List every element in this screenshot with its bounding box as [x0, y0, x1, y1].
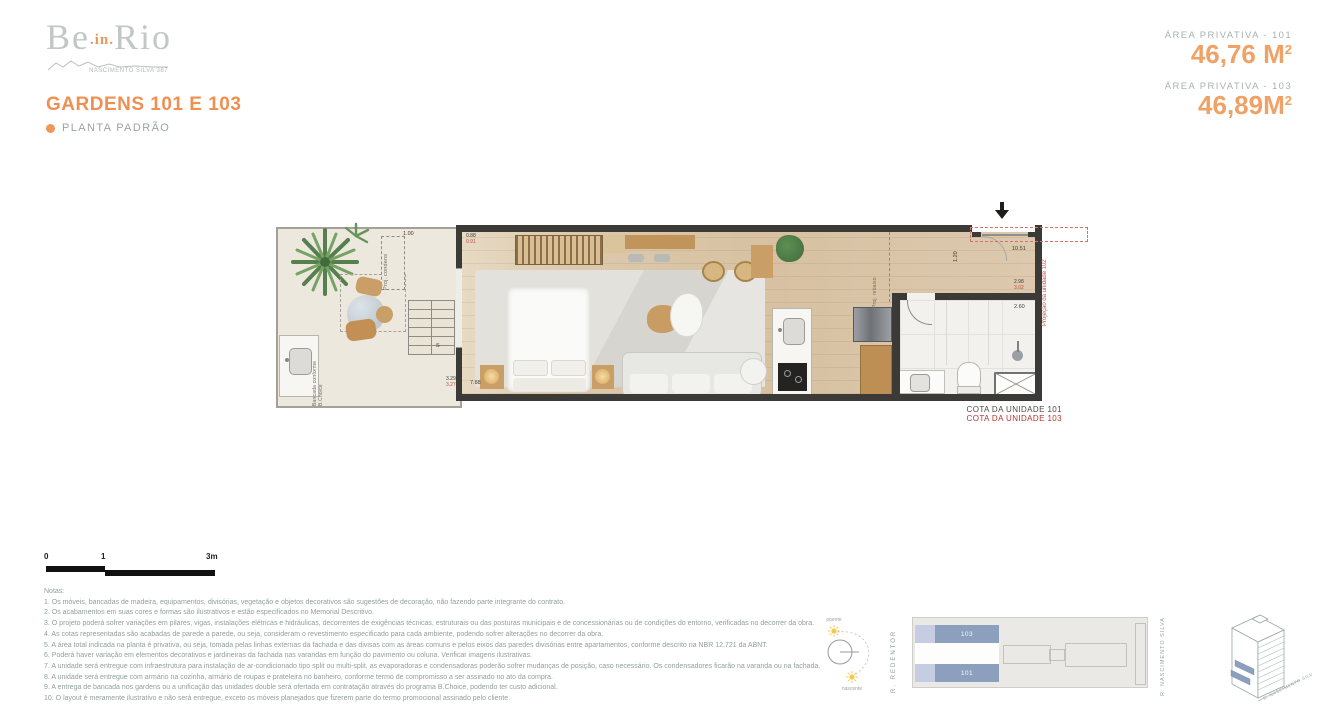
wood-desk	[625, 235, 695, 249]
dim-bath-counter: 1.62	[895, 385, 901, 396]
keyplan-unit-101: 101	[935, 664, 999, 682]
bed	[507, 287, 590, 392]
garden-pouf	[376, 306, 393, 323]
notes-title: Notas:	[44, 587, 820, 597]
keyplan-garden-top	[915, 625, 935, 643]
pillow-row	[513, 378, 586, 390]
keyplan-garden-bottom	[915, 664, 935, 682]
area-value-101: 46,76 M2	[1165, 41, 1292, 68]
bullet-icon	[46, 124, 55, 133]
floor-plan: Proj. condens Bancada conforme B.Choice …	[270, 208, 1045, 408]
logo-rio: Rio	[114, 17, 172, 57]
pillow	[513, 360, 548, 376]
street-right-label: R. NASCIMENTO SILVA	[1160, 617, 1166, 696]
sofa-cushion	[672, 374, 710, 393]
slatted-panel	[515, 235, 603, 265]
keyplan-outline	[1135, 623, 1146, 685]
proj-condens-label: Proj. condens	[383, 254, 389, 290]
burner-icon	[784, 370, 791, 377]
bath-partition	[988, 301, 989, 365]
dim-pair-bed: 0.88 0.91	[466, 234, 476, 245]
keyplan-corridor	[915, 643, 999, 664]
dim-living-length: 7.88	[470, 380, 481, 386]
scale-0: 0	[44, 552, 48, 561]
bathroom-basin	[910, 374, 930, 392]
unit-102-projection-box	[970, 227, 1088, 242]
shelf	[603, 235, 625, 253]
garden-sink	[289, 348, 312, 375]
scale-1: 1	[101, 552, 105, 561]
toilet-tank	[957, 386, 981, 394]
sliding-glass-door	[456, 268, 462, 348]
bancada-label: Bancada conforme B.Choice	[312, 361, 324, 406]
rebaixo-dash-line	[889, 232, 890, 302]
note-line: 5. A área total indicada na planta é pri…	[44, 641, 820, 651]
cota-103: COTA DA UNIDADE 103	[940, 414, 1062, 423]
brand-logo: Be.in.Rio NASCIMENTO SILVA 387	[46, 16, 172, 74]
keyplan-outline	[1049, 649, 1065, 661]
sun-icon	[828, 625, 840, 637]
bath-partition	[946, 301, 947, 365]
logo-subtitle: NASCIMENTO SILVA 387	[46, 68, 168, 74]
dim-pair-bath: 2.98 3.02	[1014, 280, 1024, 291]
scale-3m: 3m	[206, 552, 218, 561]
keyplan-outline	[1065, 643, 1127, 667]
page-title: GARDENS 101 E 103	[46, 94, 241, 116]
building-locator: R. NASCIMENTO SILVA	[1202, 604, 1312, 704]
rattan-chair	[702, 261, 725, 282]
dim-entry-width: 1.20	[953, 251, 959, 262]
kitchen-sink	[783, 318, 805, 345]
stairs-letter: S	[436, 343, 440, 349]
keyplan-unit-103: 103	[935, 625, 999, 643]
sup-103: 2	[1285, 93, 1292, 108]
cooktop	[778, 363, 807, 391]
note-line: 7. A unidade será entregue com infraestr…	[44, 662, 820, 672]
page-subtitle: PLANTA PADRÃO	[62, 122, 170, 134]
sun-icon	[846, 671, 858, 683]
note-line: 10. O layout é meramente ilustrativo e n…	[44, 694, 820, 704]
proj-rebaixo-label: Proj. rebaixo	[872, 277, 878, 308]
stool	[654, 254, 670, 262]
scale-segment-2	[105, 570, 215, 576]
note-line: 9. A entrega de bancada nos gardens ou a…	[44, 683, 820, 693]
street-left-label: R. REDENTOR	[891, 630, 897, 693]
burner-icon	[795, 376, 802, 383]
logo-be: Be	[46, 17, 90, 57]
sup-101: 2	[1285, 42, 1292, 57]
sun-path-diagram: poente nascente	[806, 606, 898, 702]
plant-icon	[776, 235, 804, 262]
keyplan-outline	[1003, 645, 1051, 664]
logo-in: .in.	[90, 32, 114, 48]
wall-top	[456, 225, 972, 232]
cota-101: COTA DA UNIDADE 101	[940, 405, 1062, 414]
marble-side-table	[740, 358, 767, 385]
note-line: 1. Os móveis, bancadas de madeira, equip…	[44, 598, 820, 608]
poente-label: poente	[826, 617, 842, 623]
scale-segment-1	[46, 566, 105, 572]
shower-arm	[1017, 341, 1019, 352]
lamp-icon	[595, 369, 610, 384]
note-line: 8. A unidade será entregue com armário n…	[44, 673, 820, 683]
nascente-label: nascente	[842, 686, 863, 692]
page-subtitle-row: PLANTA PADRÃO	[46, 122, 170, 134]
proj-unidade-label: Projeção da unidade 102	[1042, 259, 1048, 326]
stairs-rail	[431, 300, 432, 355]
brochure-page: Be.in.Rio NASCIMENTO SILVA 387 GARDENS 1…	[0, 0, 1328, 705]
logo-wordmark: Be.in.Rio	[46, 16, 172, 58]
sofa-cushion	[630, 374, 668, 393]
kitchen-island	[860, 345, 892, 395]
dim-unit-length: 10.51	[1012, 246, 1026, 252]
sun-arc-dashes	[837, 632, 869, 676]
coffee-table-white	[670, 293, 703, 337]
stool	[628, 254, 644, 262]
wall-right	[1035, 225, 1042, 401]
note-line: 4. As cotas representadas são acabadas d…	[44, 630, 820, 640]
note-line: 6. Poderá haver variação em elementos de…	[44, 651, 820, 661]
bathroom-door-gap	[907, 293, 935, 300]
entry-arrow-stem	[1000, 202, 1004, 210]
dim-bath-width: 2.60	[1014, 304, 1025, 310]
refrigerator	[853, 307, 892, 342]
note-line: 3. O projeto poderá sofrer variações em …	[44, 619, 820, 629]
notes-block: Notas: 1. Os móveis, bancadas de madeira…	[44, 587, 820, 705]
kitchen-faucet-icon	[778, 328, 782, 332]
wood-console	[751, 245, 773, 278]
shaft-x-box	[994, 372, 1038, 396]
cota-legend: COTA DA UNIDADE 101 COTA DA UNIDADE 103	[940, 405, 1062, 423]
wall-bottom	[456, 394, 1042, 401]
dim-garden-top: 1.00	[403, 231, 414, 237]
entry-arrow-icon	[995, 210, 1009, 219]
note-line: 2. Os acabamentos em suas cores e formas…	[44, 608, 820, 618]
area-value-103: 46,89M2	[1165, 92, 1292, 119]
lamp-icon	[484, 369, 499, 384]
private-areas: ÁREA PRIVATIVA - 101 46,76 M2 ÁREA PRIVA…	[1165, 30, 1292, 120]
garden-faucet-icon	[285, 358, 289, 362]
pillow	[551, 360, 586, 376]
dim-garden-bottom: 3.29 3.27	[446, 377, 456, 388]
key-plan: 103 101	[912, 617, 1148, 688]
